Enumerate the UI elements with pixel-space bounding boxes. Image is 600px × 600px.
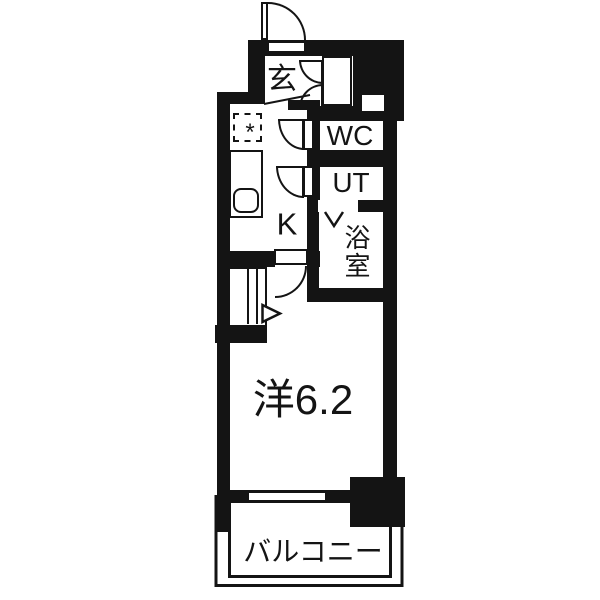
entry-door-arc [268,2,306,40]
fridge-space-mark: * [245,121,254,145]
floor-plan: * 玄 WC UT 浴室 K 洋6.2 バルコニー [0,0,600,600]
window [247,491,327,502]
closet-divider [247,269,249,324]
closet-door-triangle-icon [261,304,282,324]
wall-room-top-right [307,251,320,267]
room-door-leaf [274,249,308,265]
label-ut: UT [332,169,369,197]
wall-room-top-left [217,251,275,267]
bath-door-opening [318,200,358,212]
shoe-cabinet [322,56,352,106]
wc-door-leaf [303,119,314,150]
wall-right-lower [383,302,397,477]
wall-notch [362,95,384,111]
wc-door-arc [278,119,304,150]
room-door-arc [275,266,307,298]
label-bathroom: 浴室 [343,224,369,280]
entry-threshold [267,41,306,53]
wall-bath-bottom [307,288,397,302]
shoe-cabinet-door-upper-icon [299,60,323,84]
closet-divider [256,269,258,324]
label-kitchen: K [277,209,298,240]
ut-door-leaf [303,166,314,197]
wall-closet-bottom [215,325,267,343]
label-entrance: 玄 [267,65,297,95]
label-balcony: バルコニー [243,538,382,566]
label-wc: WC [327,122,374,150]
ut-door-arc [276,166,304,198]
kitchen-sink [233,188,259,213]
wall-right-upper [383,121,397,302]
fridge-space: * [233,113,262,142]
entry-door-leaf [261,2,268,40]
pillar [350,477,405,527]
label-western-room: 洋6.2 [253,379,353,421]
